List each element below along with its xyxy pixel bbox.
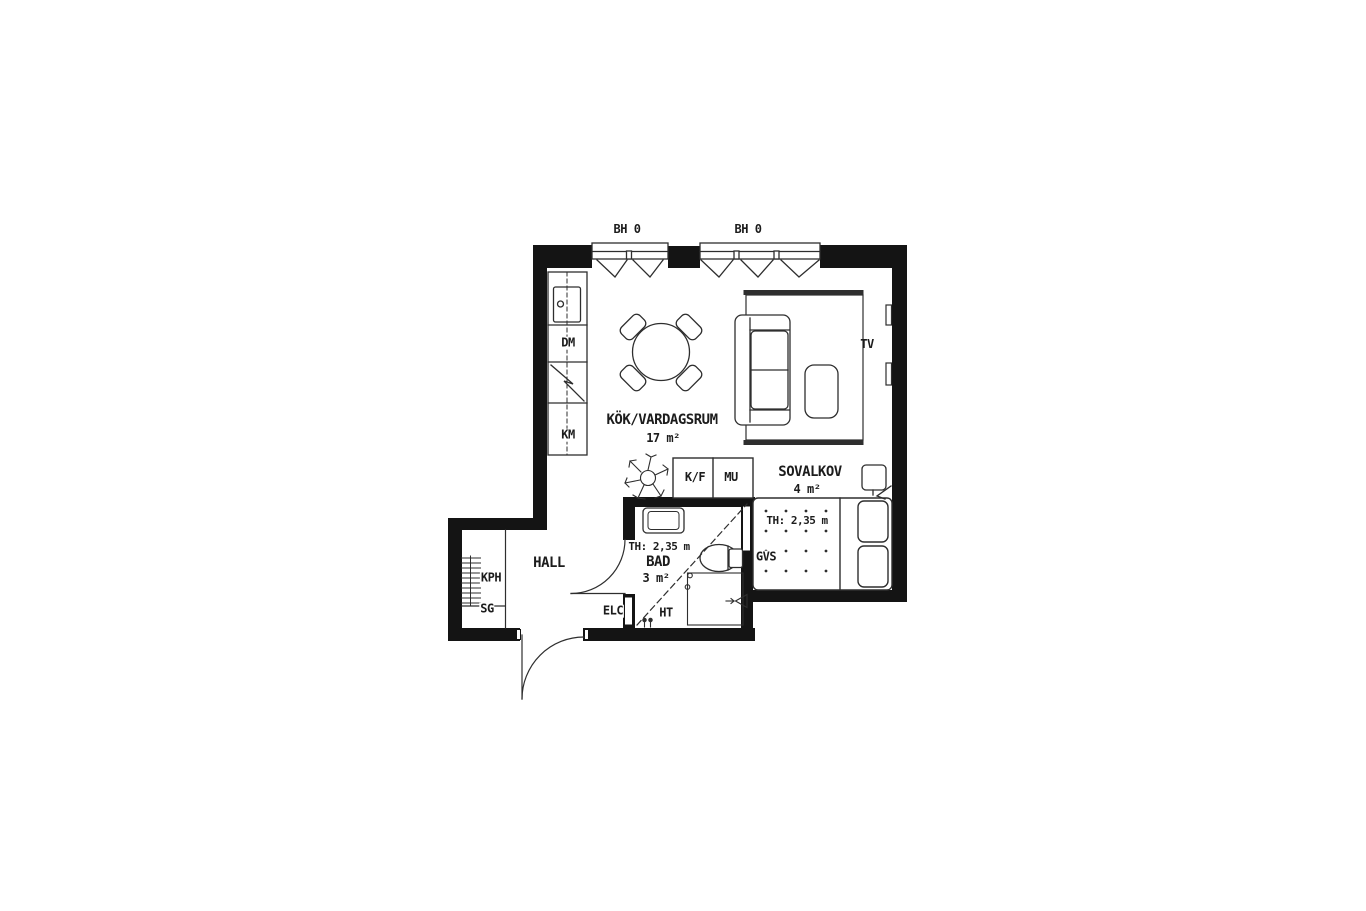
wall-alcove-bottom <box>741 590 907 602</box>
room-label-sleeping-alcove: SOVALKOV <box>778 464 841 480</box>
room-area-bathroom: 3 m² <box>643 571 670 585</box>
ceiling-height-alcove-label: TH: 2,35 m <box>765 515 828 527</box>
bathroom-sink-icon <box>643 508 684 533</box>
floorplan-drawing <box>448 222 908 702</box>
chair-icon <box>618 312 648 342</box>
chair-icon <box>674 312 704 342</box>
fridge-freezer-label: K/F <box>685 470 705 484</box>
room-label-hall: HALL <box>533 555 565 571</box>
wall-hall-bottom <box>448 628 520 641</box>
chair-icon <box>674 363 704 393</box>
sofa-icon <box>735 315 790 425</box>
shaft-hatch <box>743 506 751 551</box>
room-label-kitchen-living: KÖK/VARDAGSRUM <box>606 412 717 428</box>
tv-icon <box>886 305 892 385</box>
closet-rail-icon <box>462 556 481 606</box>
tv-label: TV <box>860 337 873 351</box>
elc-label: ELC <box>602 605 624 618</box>
wall-bath-bottom <box>583 628 755 641</box>
plant-icon <box>625 454 668 499</box>
elc-cabinet <box>625 597 633 625</box>
entry-door-icon <box>522 635 584 699</box>
microwave-label: MU <box>724 470 737 484</box>
ceiling-height-bath-label: TH: 2,35 m <box>627 541 690 553</box>
floorplan-canvas: BH 0 BH 0 KÖK/VARDAGSRUM 17 m² TV DM KM … <box>0 0 1366 911</box>
wall-hall-left <box>448 518 462 641</box>
room-area-sleeping-alcove: 4 m² <box>794 482 821 496</box>
bathroom-door-icon <box>571 540 625 594</box>
chair-icon <box>618 363 648 393</box>
window-2-icon <box>700 243 820 277</box>
entry-jamb-left <box>517 630 521 640</box>
ottoman-icon <box>805 365 838 418</box>
nightstand-icon <box>862 465 891 499</box>
wall-right <box>892 245 907 602</box>
wall-left-main <box>533 245 547 530</box>
towel-dryer-label: HT <box>658 607 673 620</box>
room-label-bathroom: BAD <box>646 554 670 570</box>
dining-table-icon <box>618 312 704 393</box>
bed-icon <box>753 498 892 590</box>
shelf-label: SG <box>479 603 494 616</box>
dishwasher-label: DM <box>560 337 575 350</box>
room-area-kitchen-living: 17 m² <box>646 431 680 445</box>
washing-machine-label: KM <box>560 429 575 442</box>
entry-jamb-right <box>585 630 589 640</box>
window2-sill-label: BH 0 <box>735 222 762 236</box>
window-1-icon <box>592 243 668 277</box>
towel-dryer-icon <box>643 618 652 627</box>
shower-icon <box>685 573 747 625</box>
shaft-label: GVS <box>755 551 777 564</box>
wall-top-pier <box>668 246 700 268</box>
coat-rail-label: KPH <box>480 572 502 585</box>
window1-sill-label: BH 0 <box>614 222 641 236</box>
